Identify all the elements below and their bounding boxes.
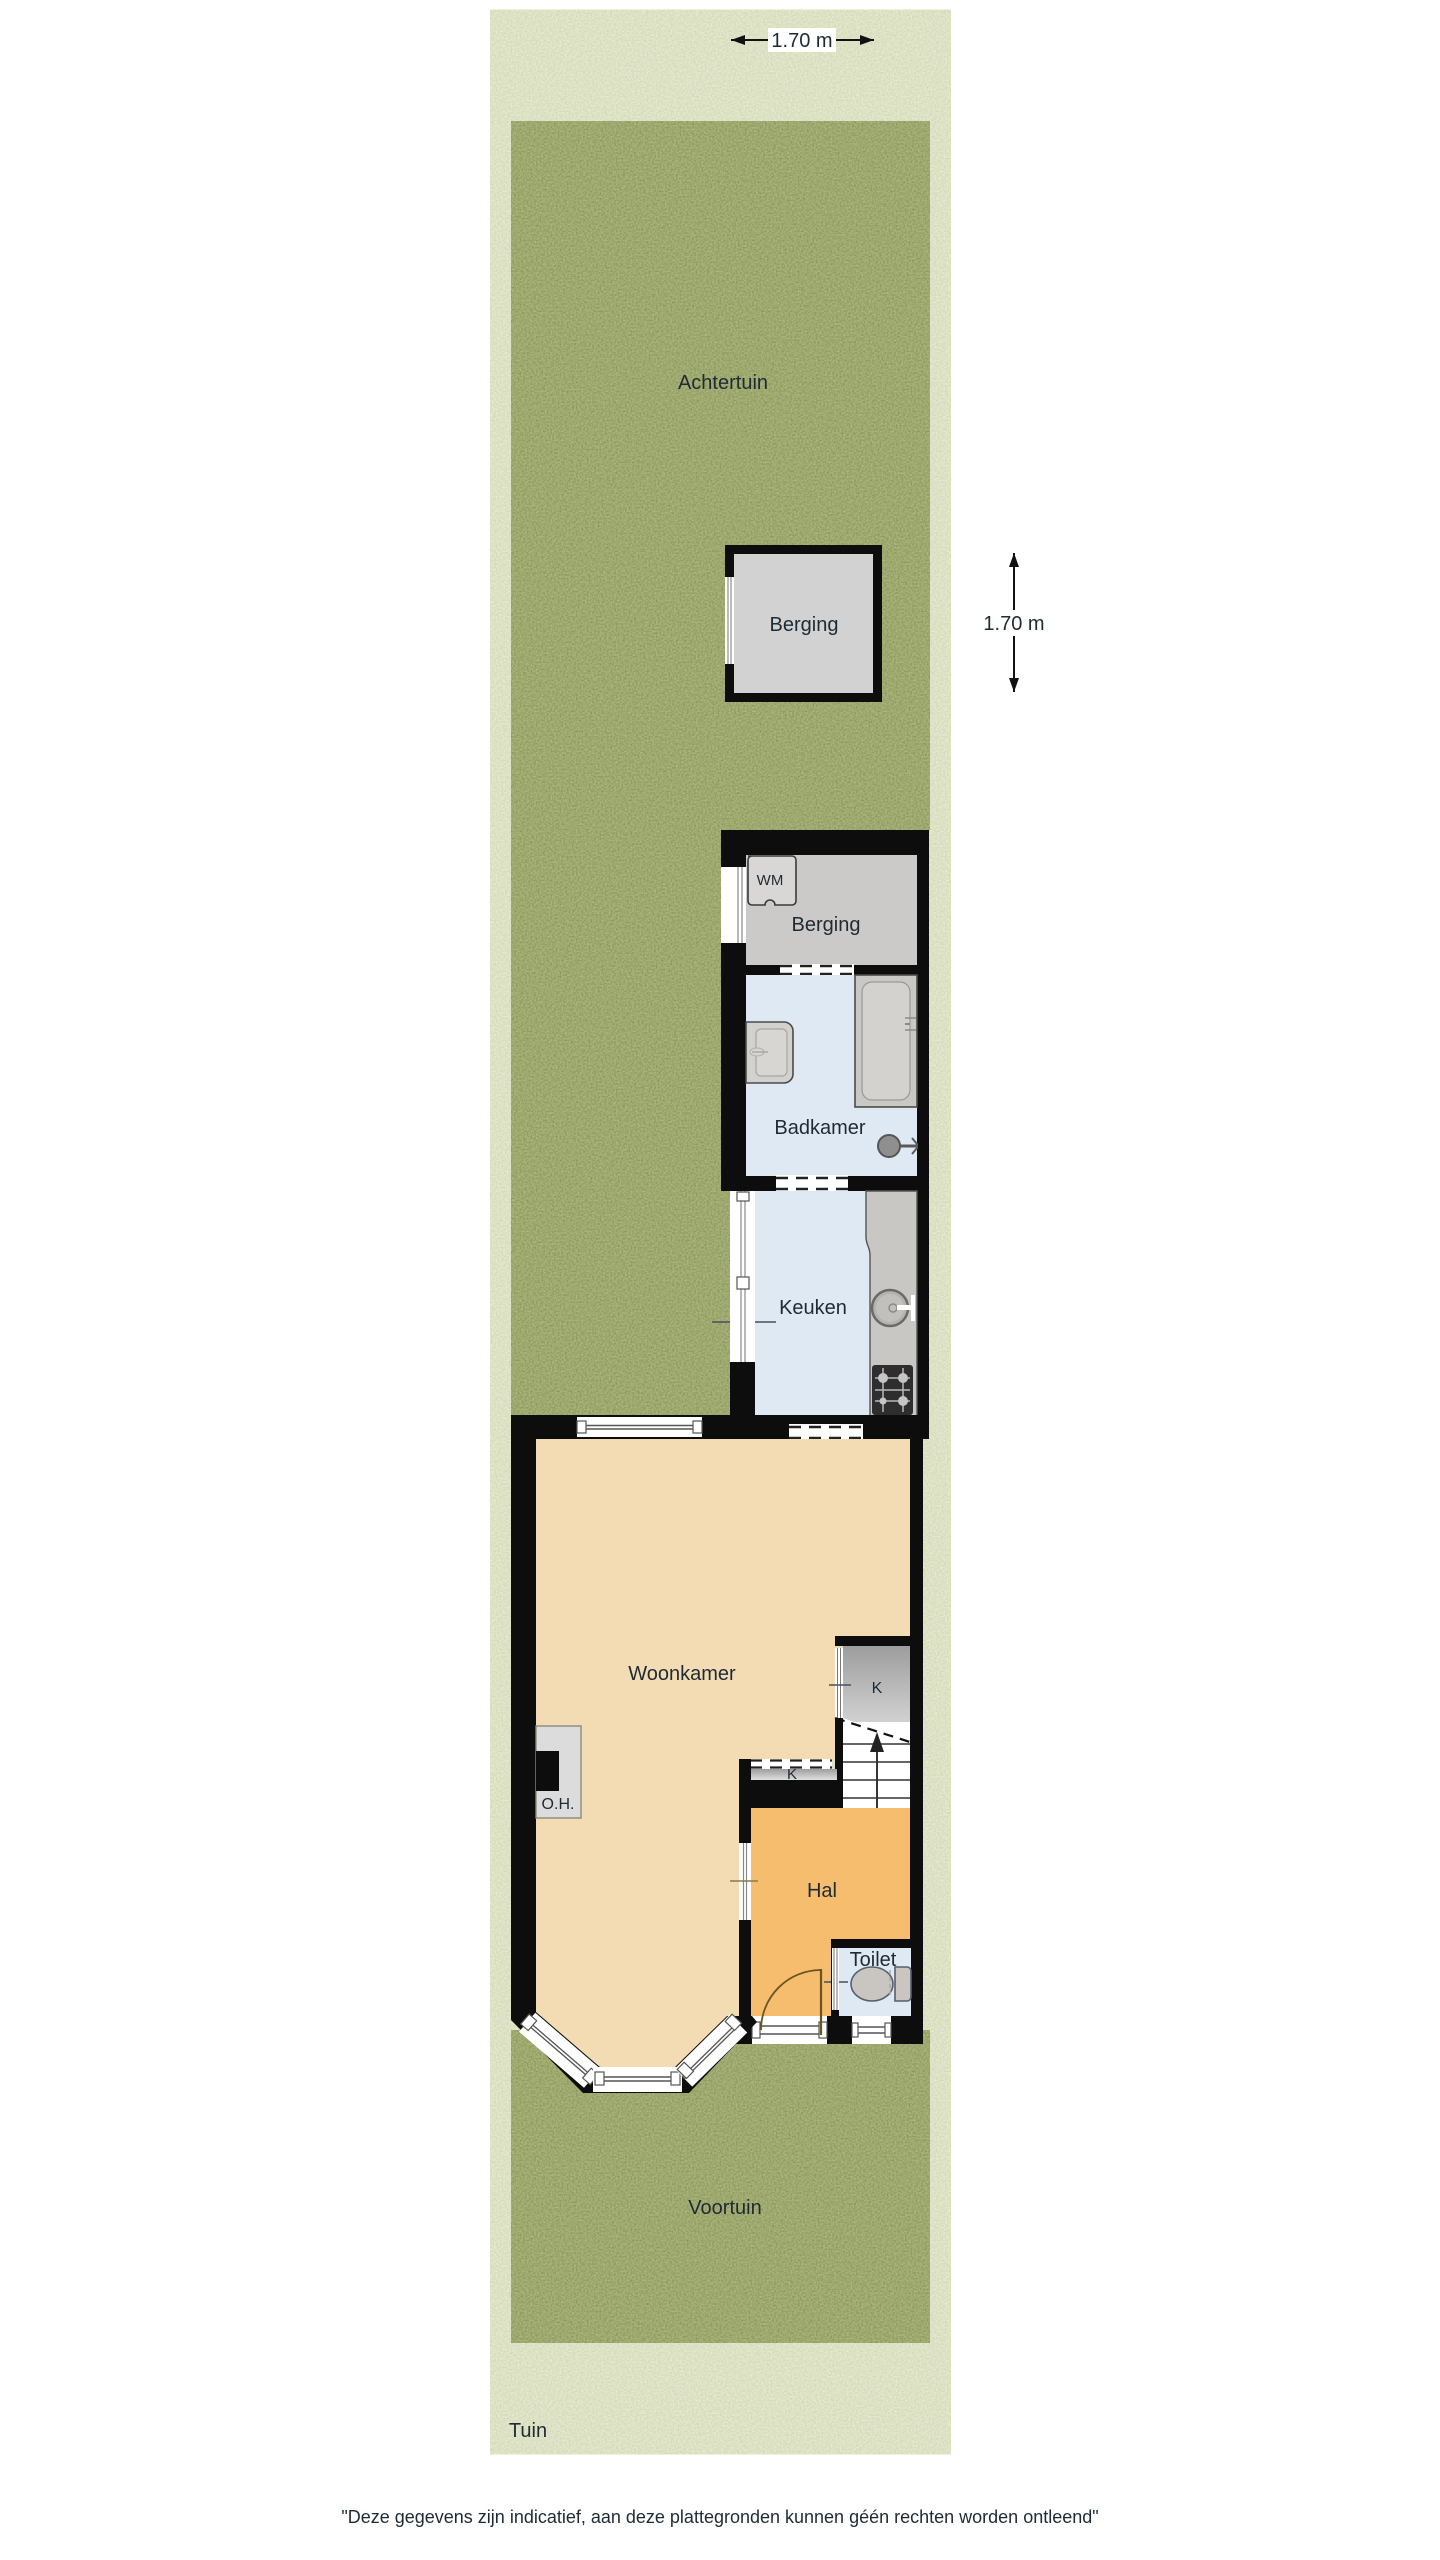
- svg-text:Voortuin: Voortuin: [688, 2197, 761, 2219]
- svg-text:WM: WM: [757, 872, 784, 889]
- svg-text:1.70 m: 1.70 m: [983, 613, 1044, 635]
- svg-text:Keuken: Keuken: [779, 1297, 847, 1319]
- svg-text:Achtertuin: Achtertuin: [678, 372, 768, 394]
- svg-text:Berging: Berging: [792, 914, 861, 936]
- svg-text:1.70 m: 1.70 m: [771, 30, 832, 52]
- svg-text:Badkamer: Badkamer: [774, 1117, 865, 1139]
- svg-text:"Deze gegevens zijn indicatief: "Deze gegevens zijn indicatief, aan deze…: [341, 2507, 1098, 2527]
- svg-text:Hal: Hal: [807, 1880, 837, 1902]
- svg-text:K: K: [872, 1680, 883, 1697]
- svg-text:Woonkamer: Woonkamer: [628, 1663, 736, 1685]
- svg-text:Tuin: Tuin: [509, 2420, 547, 2442]
- svg-text:O.H.: O.H.: [542, 1796, 575, 1813]
- svg-text:Berging: Berging: [770, 614, 839, 636]
